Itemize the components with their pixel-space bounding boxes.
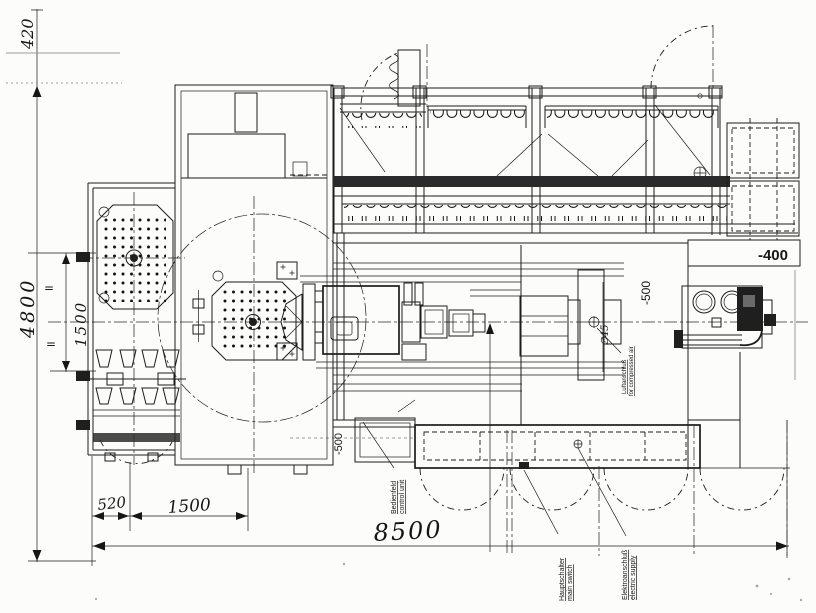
pit-400-label: -400 xyxy=(758,247,788,264)
carriage xyxy=(402,283,485,360)
door-swing xyxy=(420,468,504,510)
dim-top-label: 420 xyxy=(18,18,37,50)
main-switch-label-de: Hauptschalter xyxy=(559,557,566,601)
dim-equal-bottom: = xyxy=(46,337,56,351)
compressed-air-label-en: for compressed air xyxy=(629,346,635,396)
machine-bed xyxy=(277,233,740,468)
clamp-block-top xyxy=(277,262,297,279)
dim-bottom-overall-label: 8500 xyxy=(373,515,443,547)
air-diameter-label: ∅45 xyxy=(600,325,611,346)
callout-labels: Bedienfeld control unit Hauptschalter ma… xyxy=(363,325,637,601)
pit-500-right-label: -500 xyxy=(639,281,653,305)
dim-bottom-small-label: 520 xyxy=(97,493,128,514)
door-swing xyxy=(510,468,594,510)
headstock xyxy=(323,286,399,354)
door-swing-top xyxy=(651,26,713,88)
scanned-layout-drawing: 420 4800 = = 1500 520 1500 8500 xyxy=(0,0,816,613)
vblock-row-lower xyxy=(96,388,179,404)
dim-equal-top: = xyxy=(44,281,54,295)
control-unit-label-de: Bedienfeld xyxy=(391,481,398,514)
right-boxes xyxy=(727,118,799,240)
door-swing xyxy=(700,468,784,510)
bar-magazine xyxy=(331,25,798,243)
dim-bottom-mid-label: 1500 xyxy=(167,495,212,518)
scan-noise xyxy=(95,563,802,601)
cabinet-outline xyxy=(415,425,700,468)
bay-dark-band xyxy=(93,433,180,442)
enclosure-chimney xyxy=(235,93,257,132)
tailstock xyxy=(470,290,580,356)
electric-supply-label-en: electric supply xyxy=(630,555,637,600)
wall-fixture xyxy=(193,290,204,342)
machine-layout-plan: 420 4800 = = 1500 520 1500 8500 xyxy=(0,0,816,613)
control-unit-label-en: control unit xyxy=(399,480,406,514)
dim-left-overall-label: 4800 xyxy=(17,278,39,339)
rack-teeth-left xyxy=(346,113,422,128)
vblock-row-upper xyxy=(96,350,179,367)
pit-500-left-label: -500 xyxy=(333,433,345,455)
control-panel-box xyxy=(355,418,415,462)
rack-teeth-module-a xyxy=(430,110,525,126)
rack-teeth-module-b xyxy=(547,110,716,126)
magazine-beam xyxy=(333,176,730,187)
electric-supply-label-de: Elektroanschluß xyxy=(622,550,629,600)
conveyor-teeth xyxy=(344,205,728,221)
compressed-air-label-de: Luftanschluß xyxy=(622,359,628,394)
balloon-mark xyxy=(213,271,223,281)
main-switch-label-en: main switch xyxy=(567,564,574,601)
pump-motor xyxy=(737,287,763,331)
spring-glyph xyxy=(390,54,399,99)
dim-left-inner-label: 1500 xyxy=(72,301,90,347)
door-swing xyxy=(604,468,688,510)
hydraulic-unit xyxy=(674,270,795,380)
dimension-bottom: 520 1500 8500 xyxy=(92,420,789,566)
